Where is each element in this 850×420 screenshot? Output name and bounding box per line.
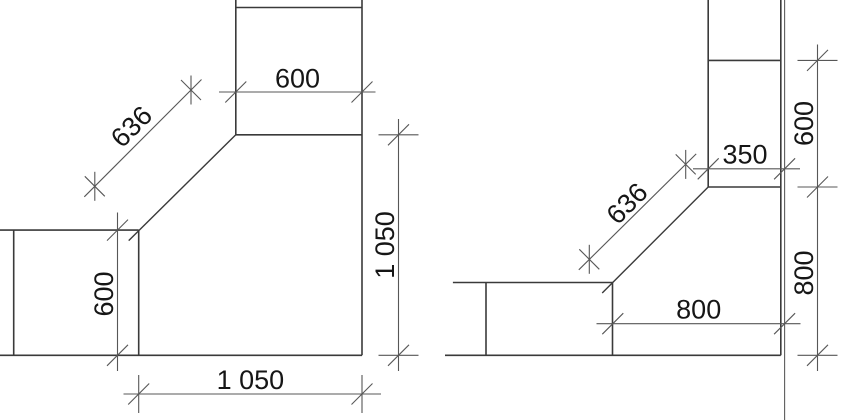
svg-text:1 050: 1 050 bbox=[217, 365, 285, 395]
svg-text:1 050: 1 050 bbox=[370, 211, 400, 279]
svg-text:350: 350 bbox=[722, 140, 767, 170]
svg-text:800: 800 bbox=[676, 295, 721, 325]
svg-text:600: 600 bbox=[789, 101, 819, 146]
svg-text:600: 600 bbox=[275, 63, 320, 93]
svg-text:600: 600 bbox=[89, 271, 119, 316]
svg-text:800: 800 bbox=[789, 250, 819, 295]
